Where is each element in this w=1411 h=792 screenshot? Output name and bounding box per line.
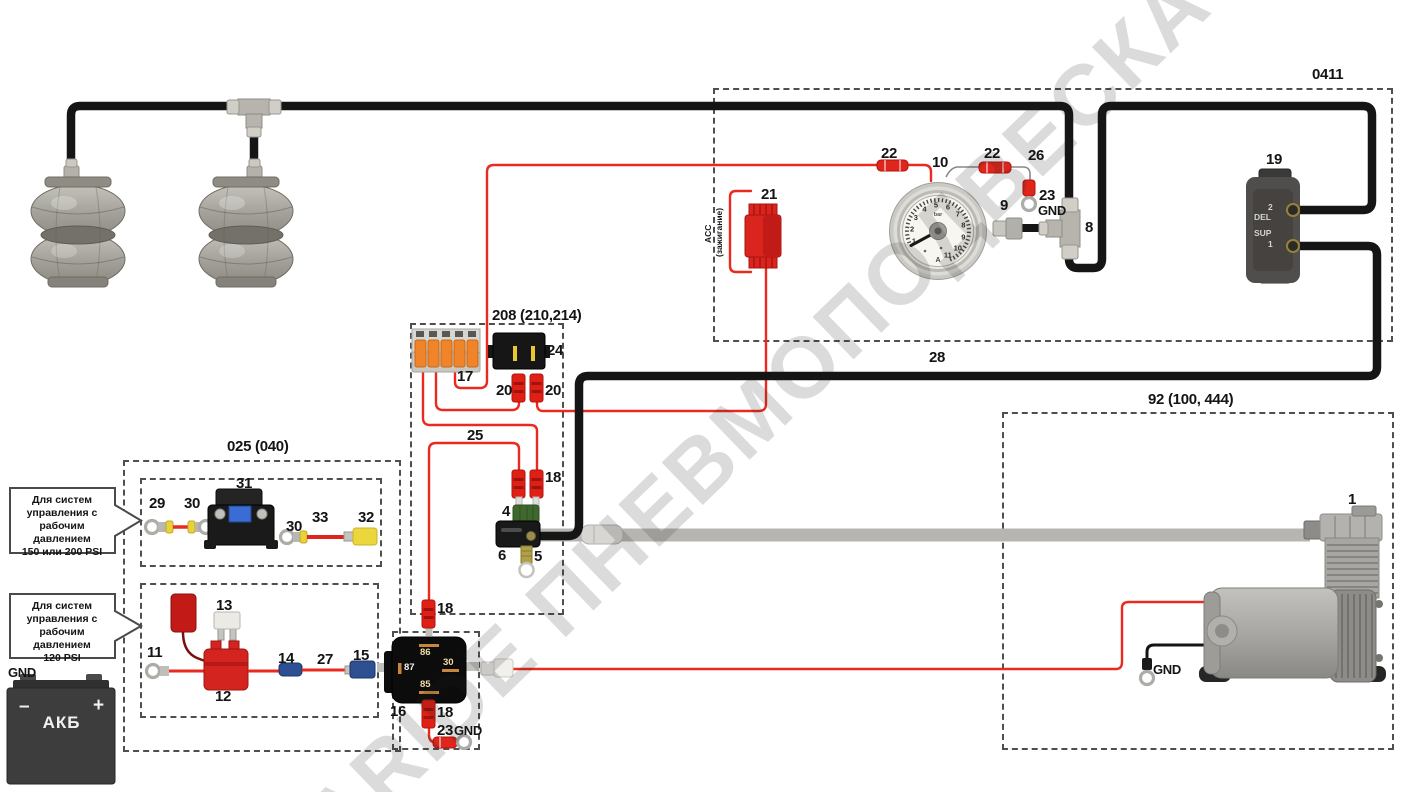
label-1: 1 bbox=[1348, 492, 1356, 507]
gauge-logo: A bbox=[935, 257, 940, 264]
label-31: 31 bbox=[236, 476, 252, 491]
label-4: 4 bbox=[502, 504, 510, 519]
gauge-tick: 3 bbox=[914, 213, 918, 222]
spade-32 bbox=[353, 528, 377, 545]
label-20-left: 20 bbox=[496, 383, 512, 398]
label-5: 5 bbox=[534, 549, 542, 564]
label-11: 11 bbox=[147, 645, 162, 660]
gauge-tick: 9 bbox=[961, 233, 965, 242]
label-6: 6 bbox=[498, 548, 506, 563]
label-33: 33 bbox=[312, 510, 328, 525]
spade-18-left bbox=[512, 470, 525, 498]
fuse-holder-12 bbox=[204, 641, 248, 690]
relay-pin-87: 87 bbox=[404, 663, 415, 673]
label-21: 21 bbox=[761, 187, 777, 202]
spade-20-right bbox=[530, 374, 543, 402]
label-30-a: 30 bbox=[184, 496, 200, 511]
gauge-tick: 10 bbox=[954, 243, 962, 252]
label-13: 13 bbox=[216, 598, 232, 613]
callout-high-l1: Для систем bbox=[11, 494, 113, 507]
callout-low-pressure: Для систем управления с рабочим давление… bbox=[11, 600, 113, 665]
gauge-tick: 5 bbox=[934, 201, 938, 210]
valve-sup: SUP bbox=[1254, 229, 1271, 238]
fuse-cap bbox=[171, 594, 196, 632]
label-18-relay-top: 18 bbox=[437, 601, 453, 616]
label-15: 15 bbox=[353, 648, 369, 663]
red-wiring bbox=[423, 165, 1216, 743]
gauge-unit: bar bbox=[934, 212, 943, 218]
gauge-tick: 11 bbox=[944, 251, 952, 260]
label-kit-025: 025 (040) bbox=[227, 439, 289, 454]
fuse-row bbox=[147, 594, 376, 690]
battery-name: АКБ bbox=[8, 714, 115, 731]
label-9: 9 bbox=[1000, 198, 1008, 213]
ring-compressor-gnd bbox=[1141, 672, 1154, 685]
fuse-cap-wire bbox=[183, 632, 205, 661]
label-29: 29 bbox=[149, 496, 165, 511]
label-8: 8 bbox=[1085, 220, 1093, 235]
label-24: 24 bbox=[547, 343, 563, 358]
label-20-right: 20 bbox=[545, 383, 561, 398]
label-gnd-compressor: GND bbox=[1153, 663, 1181, 676]
callout-high-l2: управления с bbox=[11, 507, 113, 520]
label-kit-92: 92 (100, 444) bbox=[1148, 392, 1233, 407]
acc-connector-21 bbox=[745, 204, 781, 268]
label-18-relay-bottom: 18 bbox=[437, 705, 453, 720]
wire-acc-to-fuse bbox=[537, 258, 766, 411]
wiring-diagram: 1 2 3 4 5 6 7 8 9 10 11 bar A ARIDE ПНЕ bbox=[0, 0, 1411, 792]
ring-23-gauge-gnd bbox=[1023, 198, 1036, 211]
relay-pin-85: 85 bbox=[420, 680, 431, 690]
spade-20-left bbox=[512, 374, 525, 402]
label-28: 28 bbox=[929, 350, 945, 365]
air-line-28-sup-to-switch bbox=[538, 246, 1377, 536]
callout-low-l3: рабочим давлением bbox=[11, 626, 113, 652]
mini-fuse-13 bbox=[214, 612, 240, 640]
label-27: 27 bbox=[317, 652, 333, 667]
battery-plus: + bbox=[93, 696, 104, 715]
label-gnd-relay: GND bbox=[454, 724, 482, 737]
callout-low-l1: Для систем bbox=[11, 600, 113, 613]
relay-16 bbox=[377, 627, 479, 705]
label-22-right: 22 bbox=[984, 146, 1000, 161]
callout-high-l3: рабочим давлением bbox=[11, 520, 113, 546]
label-10-gauge: 10 bbox=[932, 155, 948, 170]
valve-port1: 1 bbox=[1268, 240, 1273, 249]
acc-line2: (зажигание) bbox=[714, 208, 725, 257]
label-kit-0411: 0411 bbox=[1312, 67, 1343, 82]
air-spring-right bbox=[199, 159, 293, 287]
white-connector bbox=[481, 659, 513, 677]
ring-29-barrel bbox=[158, 522, 166, 532]
label-16: 16 bbox=[390, 704, 406, 719]
label-gnd-battery: GND bbox=[8, 666, 36, 679]
valve-del: DEL bbox=[1254, 213, 1271, 222]
label-17: 17 bbox=[457, 369, 473, 384]
label-30-b: 30 bbox=[286, 519, 302, 534]
acc-line1: ACC bbox=[703, 208, 714, 257]
callout-low-l2: управления с bbox=[11, 613, 113, 626]
label-kit-208: 208 (210,214) bbox=[492, 308, 582, 323]
breaker-row bbox=[146, 489, 378, 549]
ring-11 bbox=[147, 665, 160, 678]
relay-pin-86: 86 bbox=[420, 648, 431, 658]
fuse-holder-24 bbox=[488, 333, 550, 369]
label-23-relay: 23 bbox=[437, 723, 453, 738]
wire-relay-to-compressor bbox=[512, 602, 1216, 669]
splice-22-right bbox=[979, 162, 1011, 173]
paddle-valve-19 bbox=[1246, 169, 1300, 283]
fitting-9 bbox=[993, 218, 1022, 239]
label-32: 32 bbox=[358, 510, 374, 525]
valve-port2: 2 bbox=[1268, 203, 1273, 212]
spade-18-right bbox=[530, 470, 543, 498]
wago-connector-17 bbox=[412, 329, 480, 372]
air-spring-left bbox=[31, 159, 125, 287]
air-lines bbox=[71, 106, 1377, 536]
callout-high-l4: 150 или 200 PSI bbox=[11, 546, 113, 559]
ring-29 bbox=[146, 521, 159, 534]
pressure-gauge-10: 1 2 3 4 5 6 7 8 9 10 11 bar A bbox=[890, 183, 987, 280]
callout-low-l4: 120 PSI bbox=[11, 652, 113, 665]
tee-fitting-bags bbox=[227, 99, 281, 137]
label-14: 14 bbox=[278, 651, 294, 666]
gauge-tick: 7 bbox=[956, 210, 960, 219]
label-19: 19 bbox=[1266, 152, 1282, 167]
terminal-26 bbox=[1023, 180, 1035, 196]
label-22-left: 22 bbox=[881, 146, 897, 161]
gauge-tick: 2 bbox=[910, 225, 914, 234]
relay-pin-30: 30 bbox=[443, 658, 454, 668]
label-gnd-gauge: GND bbox=[1038, 204, 1066, 217]
circuit-breaker-31 bbox=[204, 489, 278, 549]
acc-label: ACC (зажигание) bbox=[703, 208, 725, 257]
spade-18-relay-bottom bbox=[422, 700, 435, 728]
label-26: 26 bbox=[1028, 148, 1044, 163]
label-25: 25 bbox=[467, 428, 483, 443]
label-18-switch: 18 bbox=[545, 470, 561, 485]
label-23-gauge: 23 bbox=[1039, 188, 1055, 203]
compressor-air-hose bbox=[540, 525, 1310, 544]
spade-18-relay-top bbox=[422, 600, 435, 628]
callout-high-pressure: Для систем управления с рабочим давление… bbox=[11, 494, 113, 559]
gauge-tick: 6 bbox=[946, 203, 950, 212]
gauge-tick: 8 bbox=[961, 220, 965, 229]
label-12: 12 bbox=[215, 689, 231, 704]
